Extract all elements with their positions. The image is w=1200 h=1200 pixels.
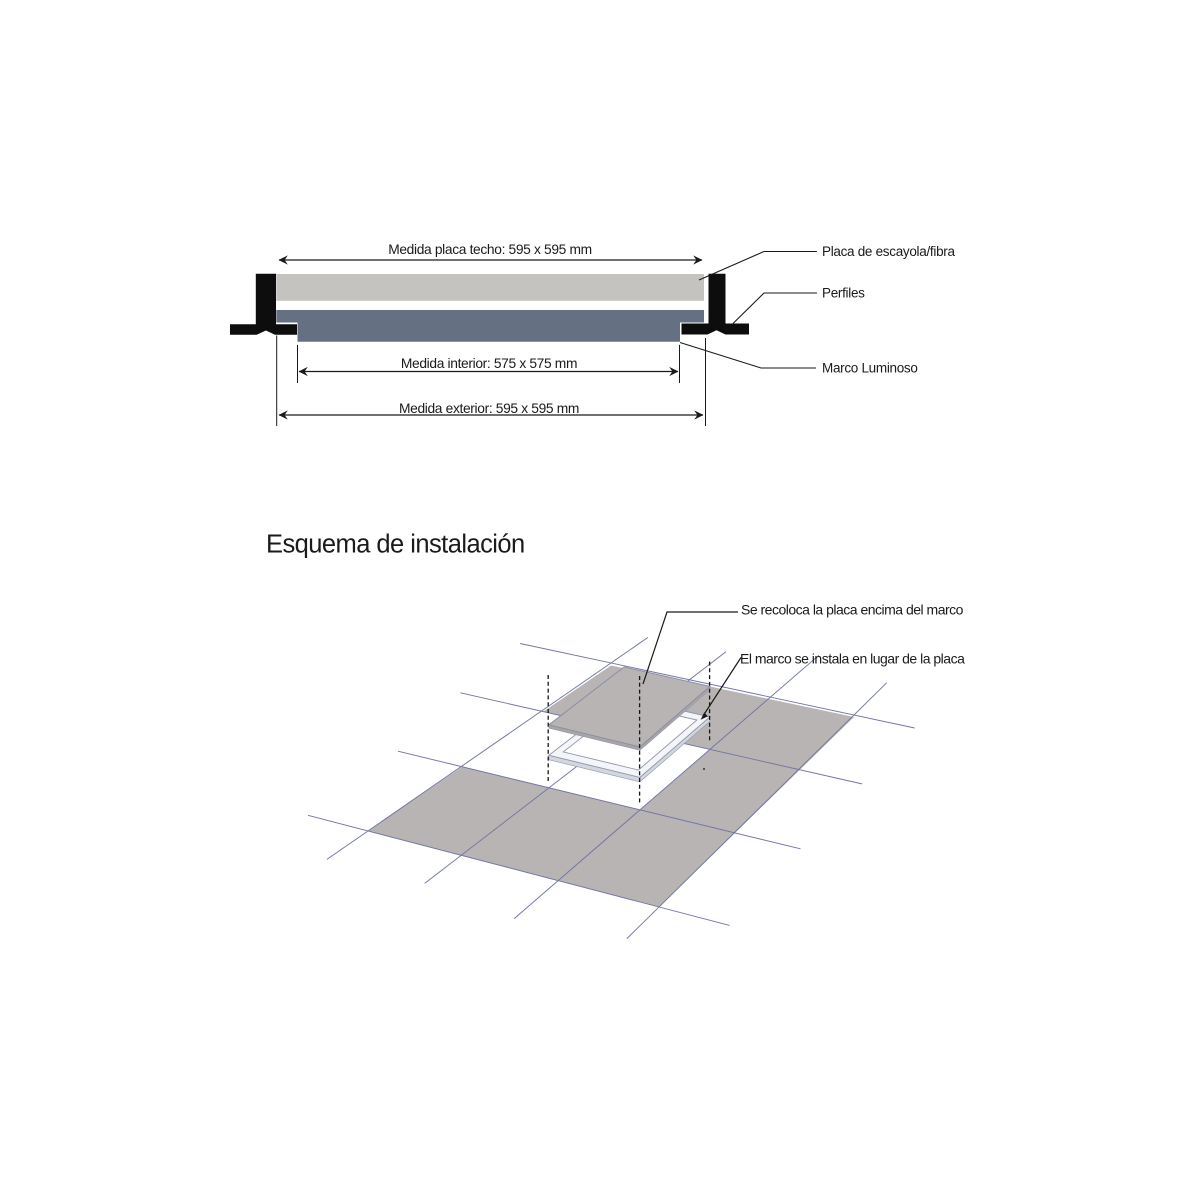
svg-text:Placa de escayola/fibra: Placa de escayola/fibra [822,244,955,259]
svg-text:Medida exterior: 595 x 595 mm: Medida exterior: 595 x 595 mm [399,401,579,416]
svg-text:Esquema de instalación: Esquema de instalación [266,531,525,559]
svg-text:Marco Luminoso: Marco Luminoso [822,361,918,376]
svg-text:Medida interior: 575 x 575 mm: Medida interior: 575 x 575 mm [401,356,577,371]
svg-text:Perfiles: Perfiles [822,286,865,301]
svg-text:El marco se instala en lugar d: El marco se instala en lugar de la placa [740,651,965,667]
svg-text:Medida placa techo: 595 x 595: Medida placa techo: 595 x 595 mm [388,242,592,257]
svg-text:Se recoloca la placa encima de: Se recoloca la placa encima del marco [741,602,964,618]
